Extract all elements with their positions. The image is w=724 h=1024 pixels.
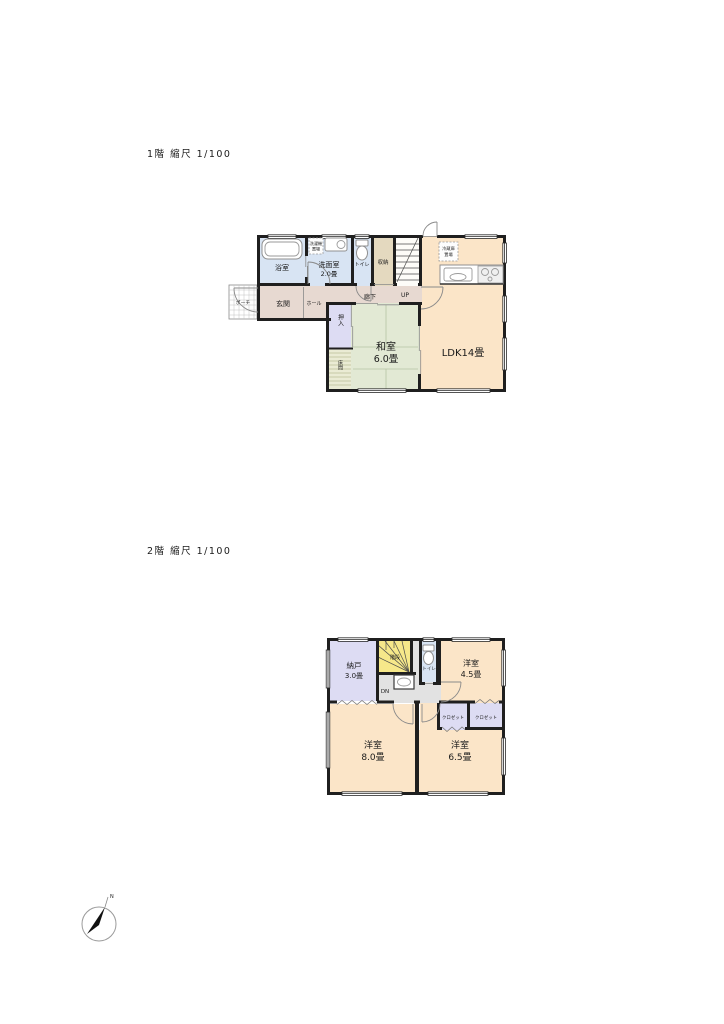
compass: N [72,892,136,956]
window [338,638,368,642]
entrance-label: 玄関 [276,299,290,308]
washer-box: 洗濯機 置場 [309,238,323,254]
washitsu-size: 6.0畳 [374,354,399,365]
window [423,638,434,642]
window [503,243,507,263]
washroom-size: 2.0畳 [321,270,338,278]
washbasin2-icon [394,675,414,689]
ldk-floor [420,236,506,392]
fridge-label-1: 冷蔵庫 [442,245,455,252]
porch-label: ポーチ [236,299,251,306]
nando-label: 納戸 [347,660,362,670]
window [342,792,402,796]
toilet1-icon [356,240,368,260]
stairs-down-label: DN [381,689,389,695]
window [355,235,369,239]
tokonoma-label: 床間 [337,359,343,371]
window [437,389,490,393]
window [465,235,497,239]
window [502,738,506,775]
bath-label: 浴室 [275,263,289,272]
storage-label: 収納 [377,258,389,266]
stairs2-label: 階段 [390,654,400,661]
compass-north-label: N [110,894,114,900]
window [326,650,330,688]
window [452,638,490,642]
room80-size: 8.0畳 [361,752,384,763]
room80-label: 洋室 [364,739,382,751]
back-door [423,222,437,237]
washitsu-label: 和室 [376,340,396,353]
toilet2-icon [423,645,434,665]
washer-label-1: 洗濯機 [310,240,322,246]
floor1-title: 1階 縮尺 1/100 [147,146,231,160]
nando-size: 3.0畳 [345,672,363,680]
floor2-title: 2階 縮尺 1/100 [147,543,231,557]
closet-right-label: クロゼット [475,714,497,721]
compass-needle-tip [105,897,108,907]
window [358,389,406,393]
compass-needle-icon [87,907,105,934]
hall-label: ホール [306,301,321,307]
window [428,792,488,796]
nando-bifold-door [337,701,377,705]
closet-left-label: クロゼット [442,714,464,721]
window [503,338,507,370]
washbasin-icon [325,238,347,251]
window [268,235,296,239]
room65-label: 洋室 [451,739,469,751]
washer-label-2: 置場 [312,246,320,252]
room45-label: 洋室 [463,658,479,668]
kitchen-counter-icon [440,265,503,284]
room45-size: 4.5畳 [461,670,482,679]
floor2-plan: 納戸 3.0畳 階段 DN トイレ 洋室 4.5畳 クロゼット クロゼット 洋室… [318,630,514,802]
corridor-label: 廊下 [364,293,376,301]
window [502,650,506,686]
nando-floor [330,641,376,701]
oshiire-floor [328,303,353,349]
bathtub-icon [262,239,302,259]
washroom-label: 洗面室 [319,260,340,269]
window [326,712,330,768]
toilet1-label: トイレ [354,262,369,268]
floor1-plan: 洗濯機 置場 冷蔵庫 置場 浴室 洗面室 2.0畳 トイレ 収納 UP 廊下 ポ… [220,213,520,403]
stairs1-floor [393,236,422,286]
toilet2-label: トイレ [422,667,436,672]
window [503,296,507,322]
ldk-label: LDK14畳 [442,347,485,359]
oshiire-label: 押入 [337,313,344,326]
fridge-box: 冷蔵庫 置場 [439,242,458,261]
fridge-label-2: 置場 [444,251,453,258]
stairs-up-label: UP [401,292,409,299]
room65-size: 6.5畳 [448,752,471,763]
